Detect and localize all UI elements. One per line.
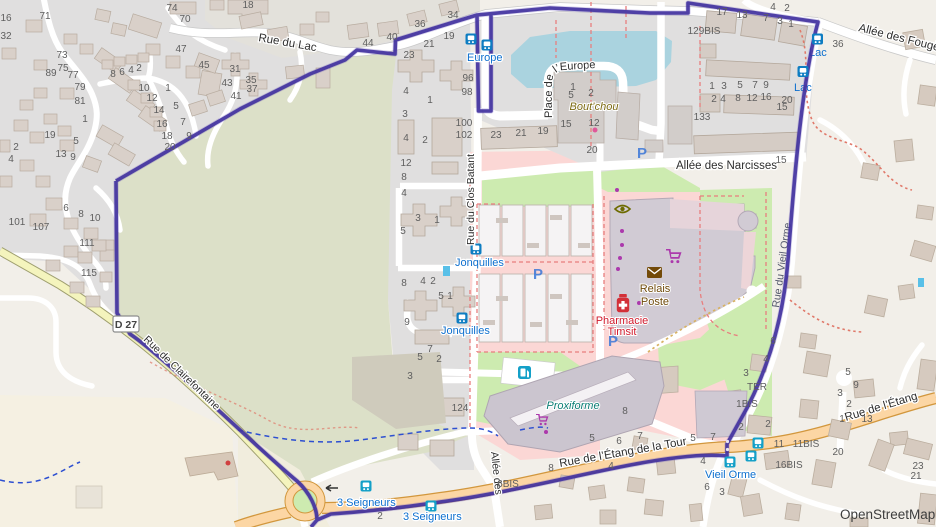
svg-text:2: 2 [711, 94, 717, 105]
svg-text:4: 4 [700, 456, 706, 467]
svg-text:5: 5 [568, 90, 574, 101]
svg-text:96: 96 [462, 73, 474, 84]
svg-text:Allée des Narcisses: Allée des Narcisses [676, 160, 777, 172]
svg-text:36: 36 [414, 19, 426, 30]
svg-text:124: 124 [452, 403, 469, 414]
svg-text:8: 8 [401, 172, 407, 183]
svg-text:6: 6 [704, 482, 710, 493]
svg-text:23: 23 [490, 130, 502, 141]
svg-text:1: 1 [427, 95, 433, 106]
svg-text:32: 32 [0, 31, 12, 42]
svg-text:7: 7 [427, 344, 433, 355]
svg-text:18: 18 [161, 131, 173, 142]
svg-text:5: 5 [690, 433, 696, 444]
svg-text:5: 5 [438, 291, 444, 302]
svg-text:3: 3 [721, 81, 727, 92]
svg-text:3: 3 [415, 213, 421, 224]
svg-text:79: 79 [74, 82, 86, 93]
svg-text:Jonquilles: Jonquilles [455, 257, 504, 269]
svg-text:37: 37 [246, 84, 258, 95]
svg-text:6: 6 [616, 436, 622, 447]
svg-text:5: 5 [845, 367, 851, 378]
svg-text:1: 1 [165, 83, 171, 94]
svg-text:14: 14 [153, 105, 165, 116]
svg-text:89: 89 [45, 68, 57, 79]
svg-text:1: 1 [839, 414, 845, 425]
svg-text:13: 13 [55, 149, 67, 160]
svg-text:1: 1 [709, 81, 715, 92]
svg-text:4: 4 [770, 2, 776, 13]
svg-text:4: 4 [720, 94, 726, 105]
svg-text:70: 70 [179, 14, 191, 25]
svg-text:7: 7 [637, 431, 643, 442]
svg-text:3 Seigneurs: 3 Seigneurs [403, 511, 462, 523]
svg-text:5: 5 [417, 352, 423, 363]
svg-text:21: 21 [423, 39, 435, 50]
svg-text:8: 8 [110, 69, 116, 80]
svg-text:6: 6 [770, 336, 776, 347]
svg-text:2: 2 [377, 511, 383, 522]
svg-text:23: 23 [403, 50, 415, 61]
svg-text:5: 5 [737, 80, 743, 91]
svg-text:6BIS: 6BIS [497, 479, 519, 490]
svg-text:3: 3 [777, 16, 783, 27]
svg-text:Jonquilles: Jonquilles [441, 325, 490, 337]
svg-text:8: 8 [548, 463, 554, 474]
svg-text:41: 41 [230, 91, 242, 102]
svg-text:4: 4 [763, 354, 769, 365]
svg-text:Vieil Orme: Vieil Orme [705, 469, 756, 481]
svg-text:2: 2 [846, 399, 852, 410]
svg-text:D 27: D 27 [115, 319, 137, 331]
svg-text:20: 20 [586, 145, 598, 156]
svg-text:1: 1 [434, 215, 440, 226]
svg-text:3: 3 [719, 487, 725, 498]
svg-text:16: 16 [0, 13, 12, 24]
svg-text:115: 115 [81, 268, 97, 279]
svg-text:18: 18 [242, 0, 254, 11]
svg-text:OpenStreetMap: OpenStreetMap [840, 507, 935, 522]
svg-text:129BIS: 129BIS [688, 26, 721, 37]
svg-text:4: 4 [401, 188, 407, 199]
svg-text:4: 4 [8, 154, 14, 165]
svg-text:45: 45 [198, 60, 210, 71]
svg-text:7: 7 [710, 432, 716, 443]
svg-text:101: 101 [9, 217, 26, 228]
svg-text:19: 19 [537, 126, 549, 137]
svg-text:16: 16 [760, 92, 772, 103]
svg-text:2: 2 [422, 135, 428, 146]
svg-text:7: 7 [763, 13, 769, 24]
svg-text:5: 5 [400, 226, 406, 237]
svg-text:2: 2 [765, 419, 771, 430]
svg-text:6: 6 [63, 203, 69, 214]
svg-text:P: P [533, 266, 543, 283]
svg-text:74: 74 [166, 3, 178, 14]
svg-text:16BIS: 16BIS [775, 460, 803, 471]
svg-text:4: 4 [128, 65, 134, 76]
svg-text:98: 98 [461, 87, 473, 98]
svg-text:44: 44 [362, 38, 374, 49]
svg-text:2: 2 [588, 88, 594, 99]
svg-text:TER: TER [747, 382, 767, 393]
svg-text:40: 40 [386, 32, 398, 43]
svg-text:19: 19 [443, 31, 455, 42]
svg-text:8: 8 [622, 406, 628, 417]
svg-text:20: 20 [164, 142, 176, 153]
svg-text:2: 2 [136, 63, 142, 74]
svg-text:4: 4 [403, 133, 409, 144]
svg-text:Relais: Relais [640, 283, 671, 295]
svg-text:9: 9 [763, 80, 769, 91]
svg-text:9: 9 [70, 152, 76, 163]
svg-text:5: 5 [173, 101, 179, 112]
svg-text:3 Seigneurs: 3 Seigneurs [337, 497, 396, 509]
svg-text:9: 9 [186, 131, 192, 142]
svg-text:Poste: Poste [641, 296, 669, 308]
svg-text:13: 13 [861, 414, 873, 425]
svg-text:71: 71 [39, 11, 51, 22]
svg-text:111: 111 [79, 238, 95, 249]
svg-text:1: 1 [788, 19, 794, 30]
svg-text:7: 7 [180, 117, 186, 128]
svg-text:81: 81 [74, 96, 86, 107]
svg-text:Proxiforme: Proxiforme [546, 400, 599, 412]
svg-text:8: 8 [78, 209, 84, 220]
svg-text:5: 5 [73, 136, 79, 147]
svg-text:1: 1 [82, 114, 88, 125]
svg-text:12: 12 [400, 158, 412, 169]
svg-text:19: 19 [44, 130, 56, 141]
svg-text:15: 15 [560, 119, 572, 130]
svg-text:6: 6 [119, 67, 125, 78]
svg-text:9: 9 [404, 317, 410, 328]
svg-text:11: 11 [774, 439, 785, 450]
svg-text:13: 13 [736, 10, 748, 21]
svg-text:8: 8 [401, 278, 407, 289]
svg-text:100: 100 [456, 118, 473, 129]
svg-text:7: 7 [752, 80, 758, 91]
svg-text:21: 21 [515, 128, 527, 139]
svg-text:4: 4 [608, 461, 614, 472]
svg-text:11BIS: 11BIS [793, 439, 820, 450]
svg-text:Europe: Europe [467, 52, 502, 64]
svg-text:10: 10 [89, 213, 101, 224]
svg-text:3: 3 [402, 109, 408, 120]
svg-text:4: 4 [403, 86, 409, 97]
svg-text:36: 36 [832, 39, 844, 50]
svg-text:20: 20 [832, 447, 844, 458]
svg-text:16: 16 [156, 119, 168, 130]
svg-text:21: 21 [910, 471, 922, 482]
svg-text:4: 4 [420, 276, 426, 287]
svg-text:102: 102 [456, 130, 473, 141]
svg-text:2: 2 [13, 142, 19, 153]
svg-text:73: 73 [56, 50, 68, 61]
svg-text:2: 2 [436, 354, 442, 365]
svg-text:133: 133 [694, 112, 711, 123]
svg-text:43: 43 [221, 78, 233, 89]
svg-text:2: 2 [738, 422, 744, 433]
svg-text:3: 3 [837, 388, 843, 399]
svg-text:15: 15 [775, 155, 787, 166]
svg-text:47: 47 [175, 44, 187, 55]
svg-text:17: 17 [716, 7, 728, 18]
svg-text:12: 12 [588, 118, 600, 129]
svg-text:2: 2 [784, 3, 790, 14]
svg-text:107: 107 [33, 222, 50, 233]
svg-text:2: 2 [430, 276, 436, 287]
svg-text:77: 77 [67, 70, 79, 81]
svg-text:12: 12 [146, 93, 158, 104]
svg-text:12: 12 [746, 93, 758, 104]
svg-text:34: 34 [447, 10, 459, 21]
svg-text:3: 3 [407, 371, 413, 382]
svg-text:Rue du Clos Batant: Rue du Clos Batant [465, 154, 477, 245]
svg-text:8: 8 [735, 93, 741, 104]
svg-text:Timsit: Timsit [608, 326, 637, 338]
svg-text:5: 5 [589, 433, 595, 444]
svg-text:9: 9 [853, 380, 859, 391]
svg-text:P: P [637, 145, 647, 162]
svg-text:Bout’chou: Bout’chou [570, 101, 619, 113]
svg-text:31: 31 [229, 64, 241, 75]
svg-text:1: 1 [447, 291, 453, 302]
svg-text:3: 3 [743, 368, 749, 379]
svg-text:1BIS: 1BIS [736, 399, 758, 410]
svg-text:15: 15 [776, 102, 788, 113]
